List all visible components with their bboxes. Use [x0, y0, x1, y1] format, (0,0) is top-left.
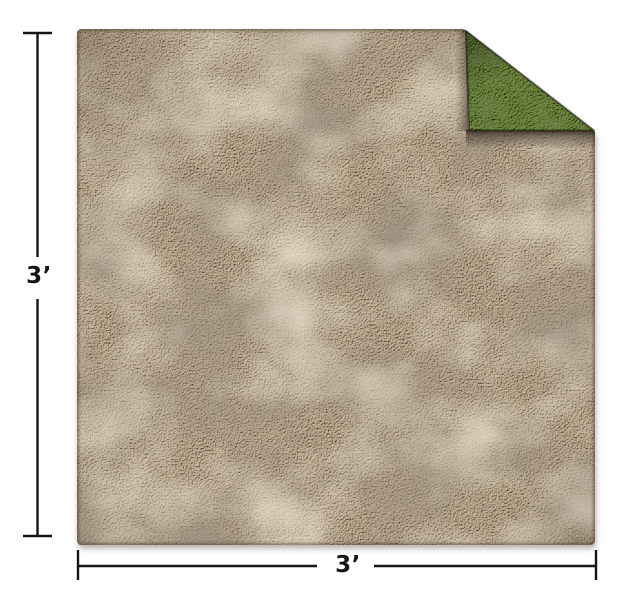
- battle-mat-graphic: [0, 0, 621, 598]
- fold-shadow: [466, 130, 595, 149]
- height-dimension-label: 3’: [17, 262, 61, 290]
- width-dimension-label: 3’: [326, 551, 370, 579]
- product-image: 3’ 3’: [0, 0, 621, 598]
